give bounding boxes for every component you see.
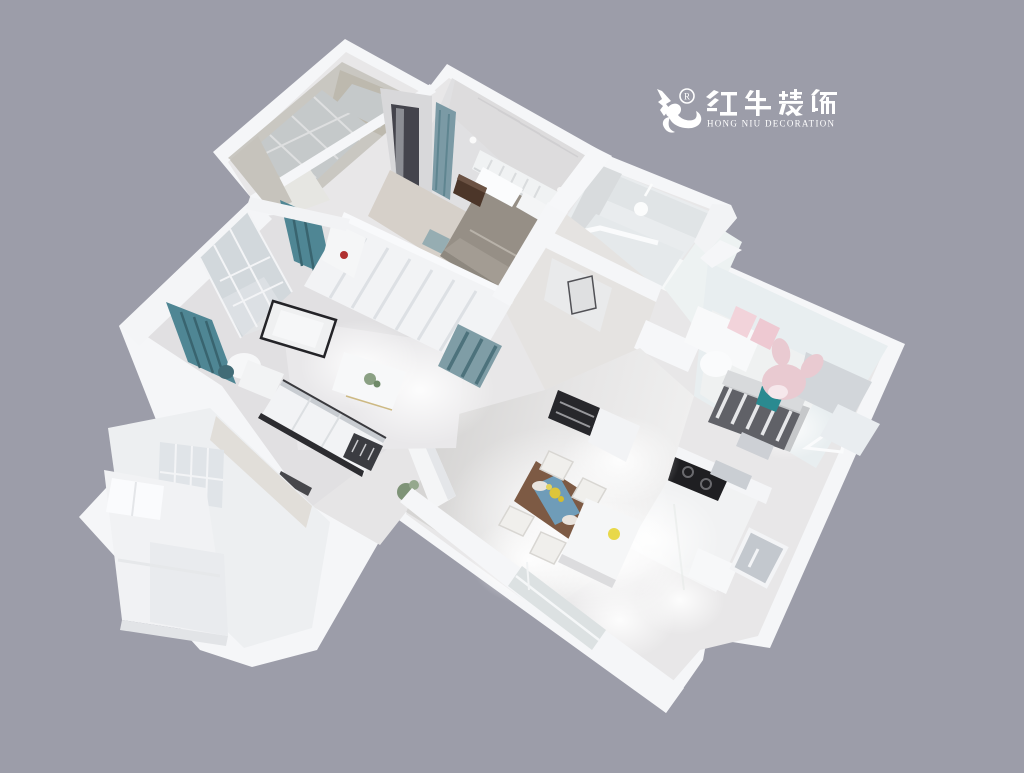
svg-text:HONG NIU DECORATION: HONG NIU DECORATION xyxy=(707,119,835,129)
svg-text:R: R xyxy=(684,92,690,102)
